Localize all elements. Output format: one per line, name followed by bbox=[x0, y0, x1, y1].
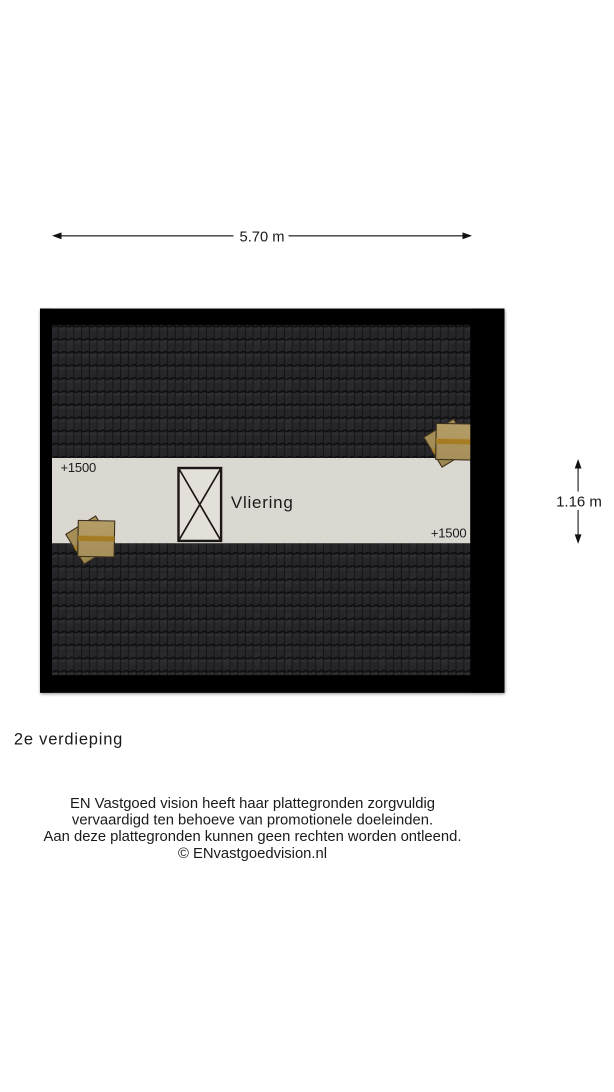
svg-text:+1500: +1500 bbox=[61, 460, 97, 475]
svg-text:1.16 m: 1.16 m bbox=[556, 494, 602, 511]
svg-text:© ENvastgoedvision.nl: © ENvastgoedvision.nl bbox=[178, 846, 327, 862]
svg-text:vervaardigd ten behoeve van pr: vervaardigd ten behoeve van promotionele… bbox=[72, 813, 433, 829]
svg-text:+1500: +1500 bbox=[431, 525, 467, 540]
svg-text:Aan deze plattegronden kunnen: Aan deze plattegronden kunnen geen recht… bbox=[44, 829, 462, 845]
svg-text:EN Vastgoed vision heeft haar: EN Vastgoed vision heeft haar plattegron… bbox=[70, 796, 435, 812]
svg-text:5.70 m: 5.70 m bbox=[240, 230, 285, 246]
svg-text:Vliering: Vliering bbox=[231, 493, 294, 512]
svg-text:2e verdieping: 2e verdieping bbox=[14, 731, 123, 749]
